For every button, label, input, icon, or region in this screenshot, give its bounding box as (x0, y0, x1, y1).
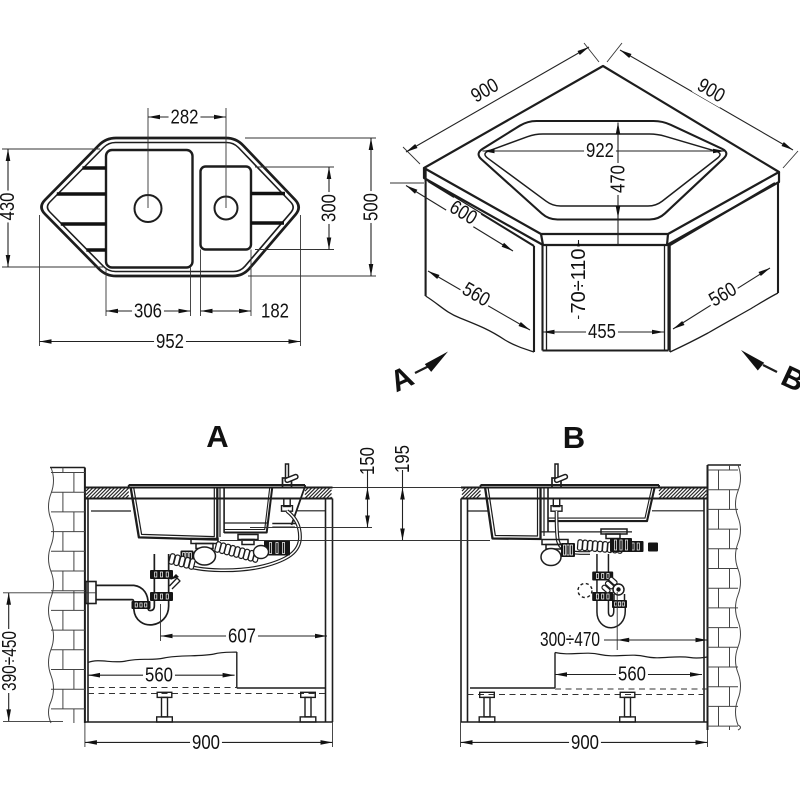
svg-text:500: 500 (361, 193, 383, 221)
svg-text:900: 900 (192, 732, 220, 754)
svg-text:150: 150 (357, 447, 379, 475)
svg-text:455: 455 (588, 321, 616, 343)
svg-text:900: 900 (571, 732, 599, 754)
svg-text:300÷470: 300÷470 (540, 629, 600, 651)
svg-text:470: 470 (608, 165, 630, 193)
svg-text:607: 607 (228, 626, 256, 648)
svg-text:306: 306 (134, 301, 162, 323)
svg-text:282: 282 (171, 107, 199, 129)
svg-text:390÷450: 390÷450 (0, 631, 21, 691)
svg-text:B: B (563, 420, 585, 455)
svg-text:195: 195 (392, 445, 414, 473)
svg-text:922: 922 (586, 140, 614, 162)
svg-text:70÷110: 70÷110 (568, 249, 590, 314)
svg-text:430: 430 (0, 193, 19, 221)
svg-text:560: 560 (618, 664, 646, 686)
svg-text:560: 560 (145, 665, 173, 687)
svg-text:952: 952 (156, 331, 184, 353)
svg-text:182: 182 (261, 301, 289, 323)
svg-text:A: A (206, 419, 228, 454)
svg-text:300: 300 (319, 194, 341, 222)
